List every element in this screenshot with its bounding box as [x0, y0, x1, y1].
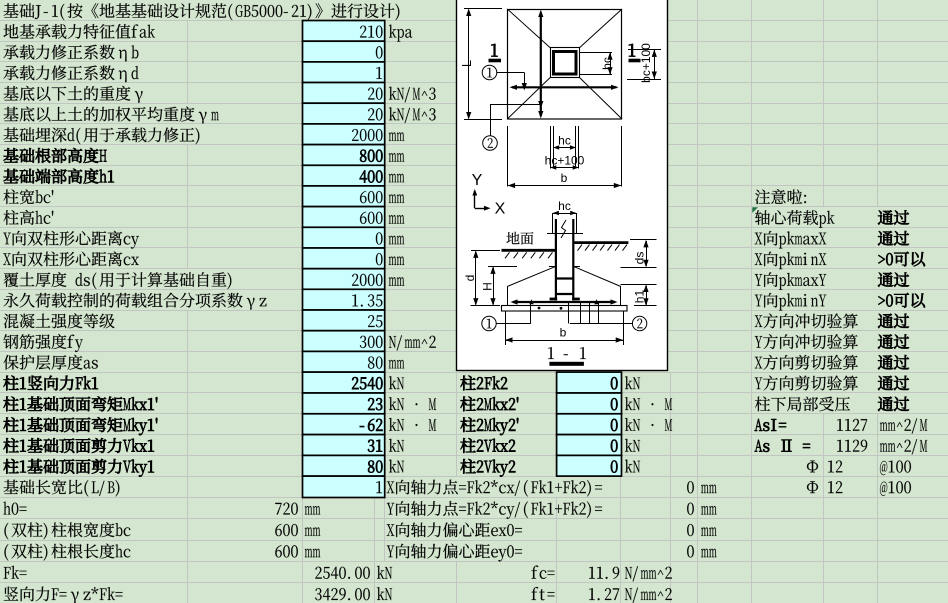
svg-text:h1: h1 — [633, 290, 647, 304]
svg-text:ds: ds — [633, 252, 647, 265]
svg-text:H: H — [481, 282, 495, 291]
svg-text:b: b — [560, 326, 567, 340]
svg-text:hc: hc — [558, 199, 571, 213]
svg-text:hc: hc — [558, 134, 571, 148]
svg-text:X: X — [495, 201, 506, 218]
svg-text:hc+100: hc+100 — [545, 154, 585, 168]
svg-text:b: b — [561, 171, 568, 185]
svg-text:Y: Y — [472, 172, 483, 189]
svg-text:d: d — [463, 275, 477, 282]
svg-text:bc: bc — [600, 57, 614, 70]
svg-text:bc+100: bc+100 — [639, 43, 653, 83]
svg-text:L: L — [459, 60, 474, 67]
